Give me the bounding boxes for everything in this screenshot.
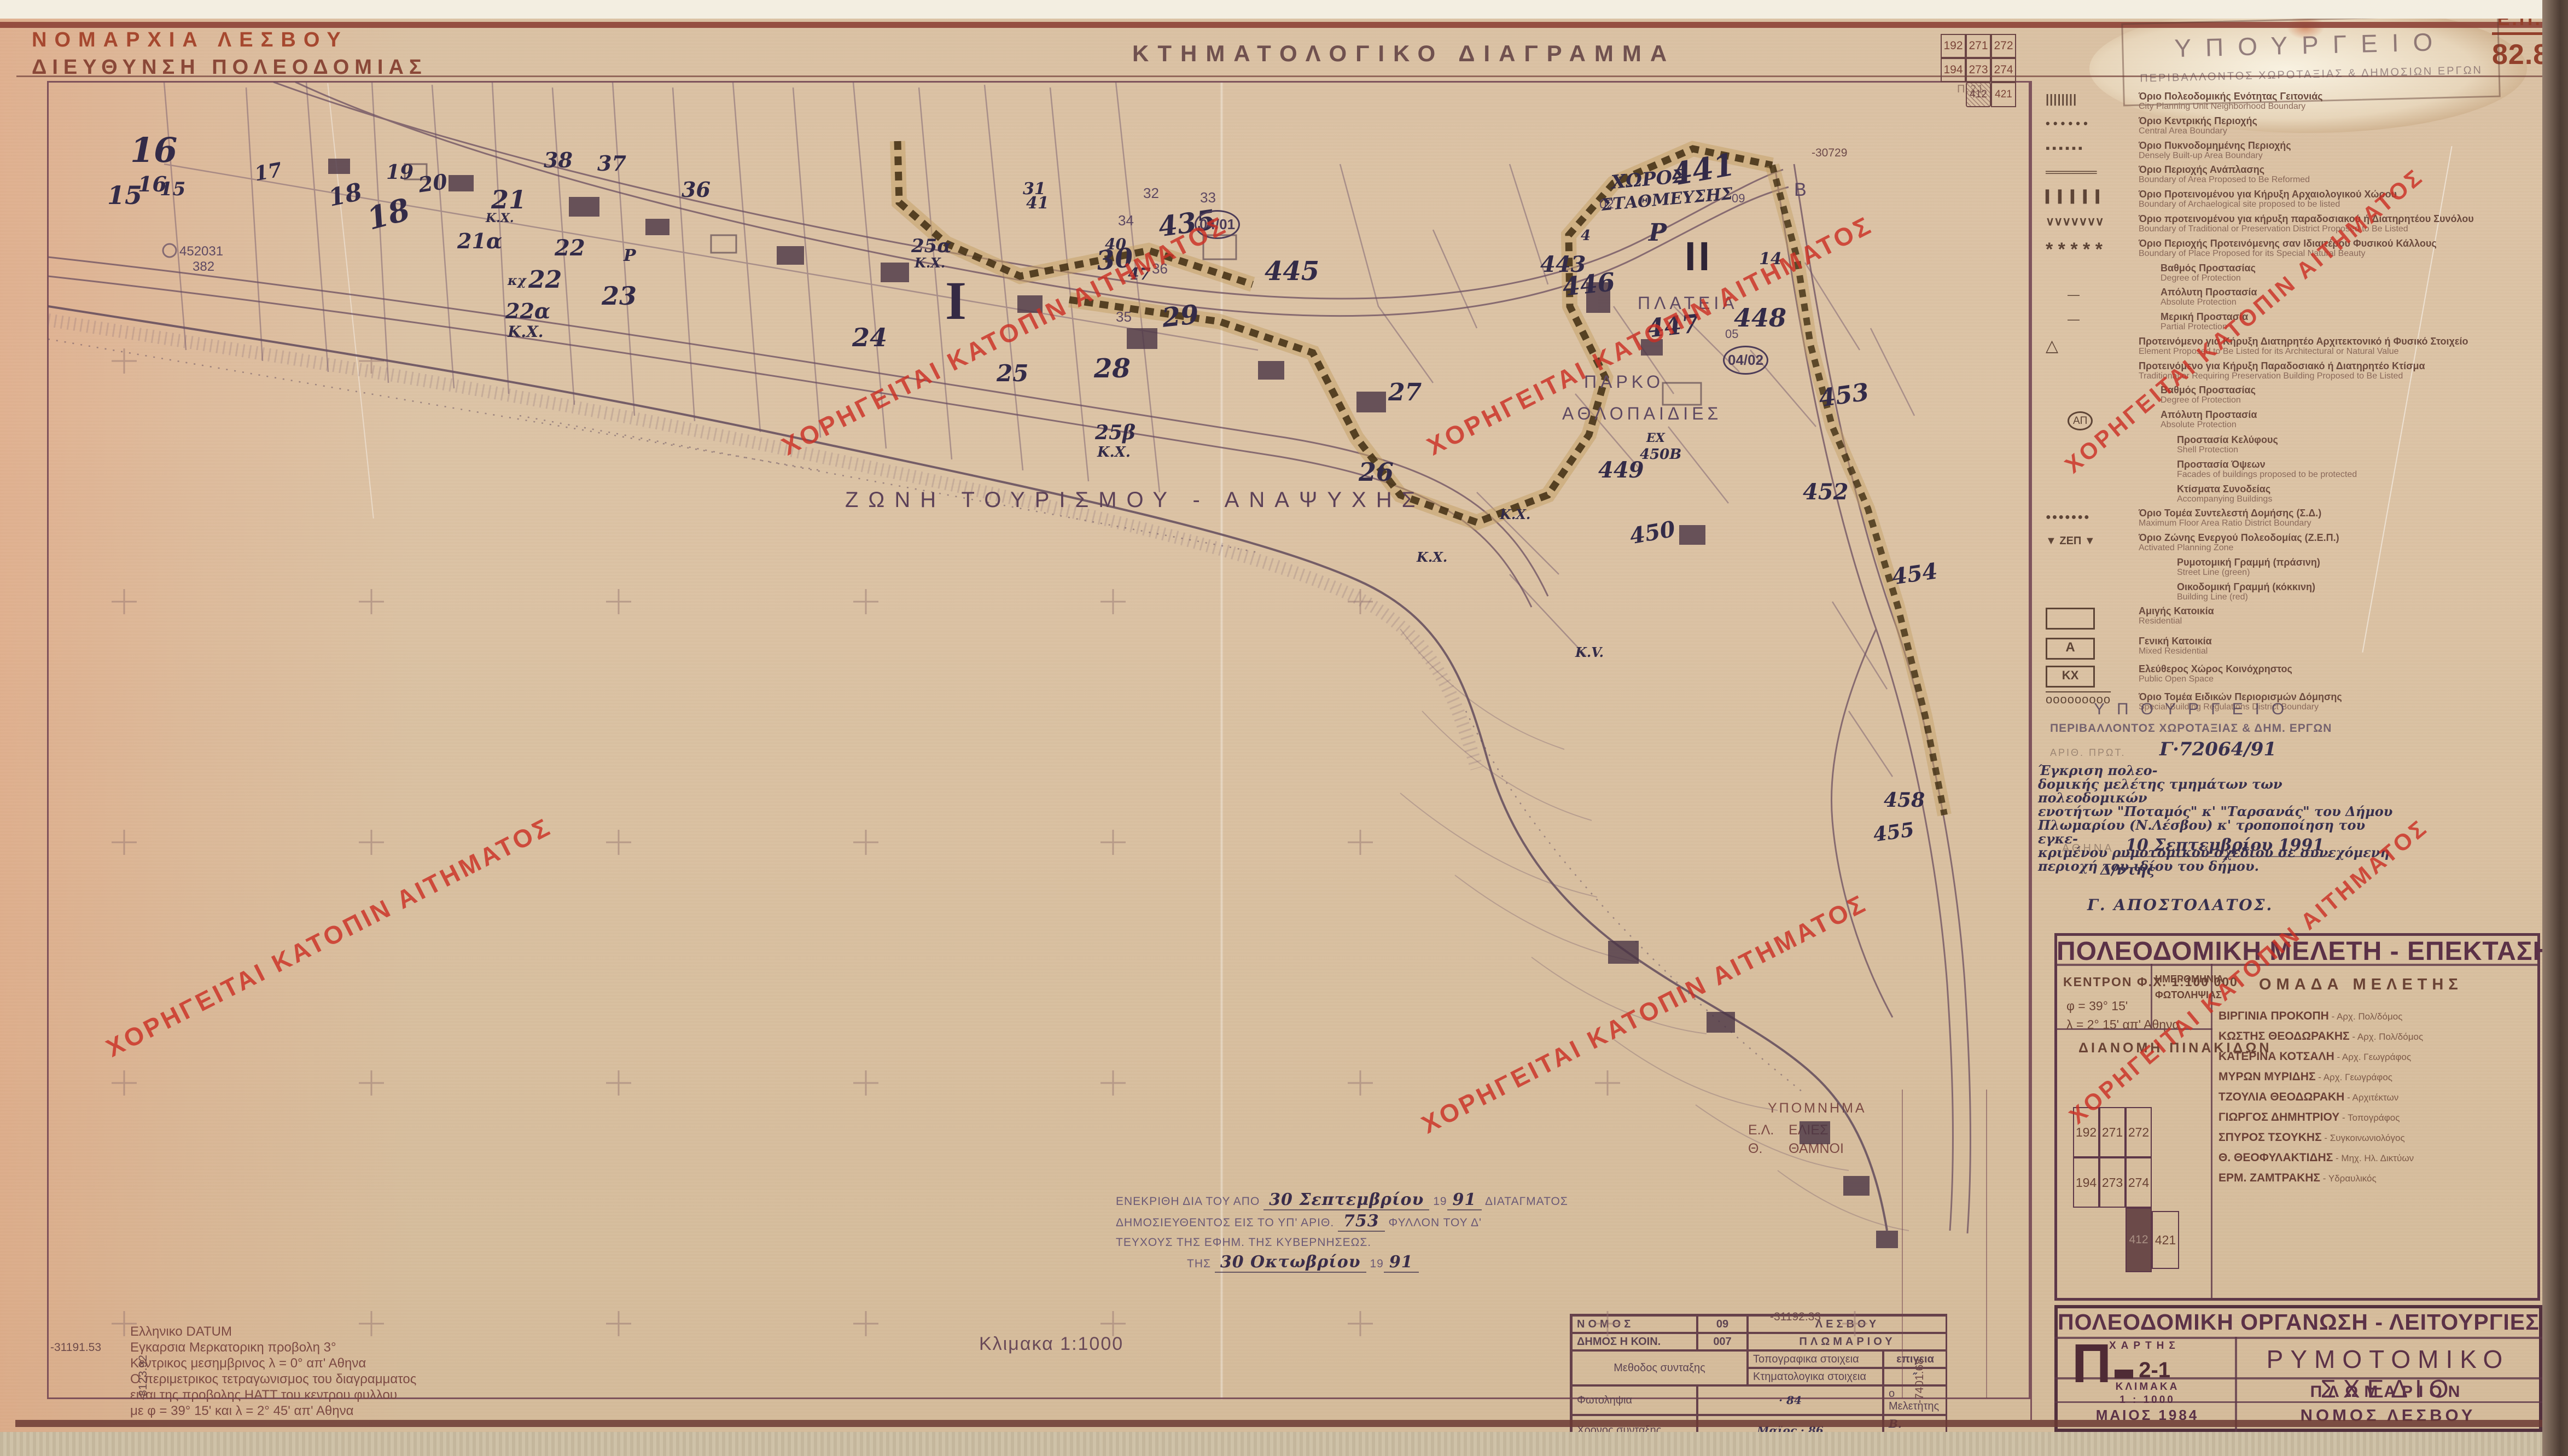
watermark-layer: ΧΟΡΗΓΕΙΤΑΙ ΚΑΤΟΠΙΝ ΑΙΤΗΜΑΤΟΣΧΟΡΗΓΕΙΤΑΙ Κ… — [0, 0, 2568, 1456]
watermark-text: ΧΟΡΗΓΕΙΤΑΙ ΚΑΤΟΠΙΝ ΑΙΤΗΜΑΤΟΣ — [2060, 163, 2429, 478]
watermark: ΧΟΡΗΓΕΙΤΑΙ ΚΑΤΟΠΙΝ ΑΙΤΗΜΑΤΟΣ — [2064, 814, 2433, 1129]
watermark: ΧΟΡΗΓΕΙΤΑΙ ΚΑΤΟΠΙΝ ΑΙΤΗΜΑΤΟΣ — [777, 209, 1232, 461]
watermark-text: ΧΟΡΗΓΕΙΤΑΙ ΚΑΤΟΠΙΝ ΑΙΤΗΜΑΤΟΣ — [1422, 210, 1877, 461]
watermark: ΧΟΡΗΓΕΙΤΑΙ ΚΑΤΟΠΙΝ ΑΙΤΗΜΑΤΟΣ — [2060, 163, 2429, 479]
watermark: ΧΟΡΗΓΕΙΤΑΙ ΚΑΤΟΠΙΝ ΑΙΤΗΜΑΤΟΣ — [1422, 209, 1877, 461]
watermark: ΧΟΡΗΓΕΙΤΑΙ ΚΑΤΟΠΙΝ ΑΙΤΗΜΑΤΟΣ — [101, 811, 556, 1063]
cadastral-map-scan: { "header": { "agency_line1": "ΝΟΜΑΡΧΙΑ … — [0, 0, 2568, 1456]
watermark-text: ΧΟΡΗΓΕΙΤΑΙ ΚΑΤΟΠΙΝ ΑΙΤΗΜΑΤΟΣ — [2064, 814, 2433, 1129]
watermark-text: ΧΟΡΗΓΕΙΤΑΙ ΚΑΤΟΠΙΝ ΑΙΤΗΜΑΤΟΣ — [101, 812, 556, 1062]
watermark-text: ΧΟΡΗΓΕΙΤΑΙ ΚΑΤΟΠΙΝ ΑΙΤΗΜΑΤΟΣ — [777, 210, 1231, 461]
watermark-text: ΧΟΡΗΓΕΙΤΑΙ ΚΑΤΟΠΙΝ ΑΙΤΗΜΑΤΟΣ — [1417, 888, 1871, 1139]
watermark: ΧΟΡΗΓΕΙΤΑΙ ΚΑΤΟΠΙΝ ΑΙΤΗΜΑΤΟΣ — [1417, 888, 1872, 1139]
